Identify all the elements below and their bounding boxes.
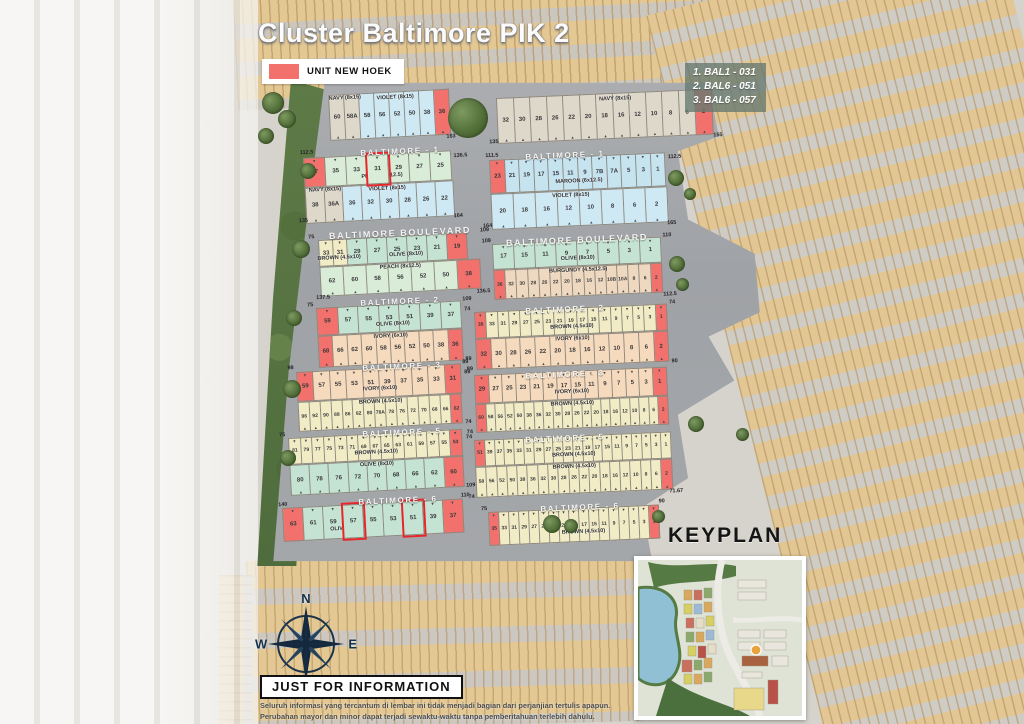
unit-1: ▼1 — [653, 367, 668, 397]
entrance-marker-icon: ▼ — [333, 158, 337, 162]
unit-23: ▼23 — [407, 234, 428, 262]
unit-number: 58 — [364, 113, 371, 119]
unit-38: ▲38 — [457, 259, 481, 290]
unit-7: ▼7 — [612, 368, 627, 398]
unit-number: 17 — [595, 446, 601, 451]
entrance-marker-icon: ▼ — [324, 241, 328, 245]
unit-number: 52 — [409, 344, 416, 350]
unit-number: 75 — [326, 447, 332, 452]
entrance-marker-icon: ▲ — [645, 357, 649, 361]
unit-21: ▼21 — [505, 159, 521, 194]
entrance-marker-icon: ▼ — [501, 245, 505, 249]
unit-20: ▲20 — [579, 94, 597, 141]
unit-number: 18 — [521, 207, 528, 213]
compass-west-label: W — [255, 638, 267, 651]
tree-icon — [669, 256, 685, 272]
unit-number: 61 — [407, 442, 413, 447]
entrance-marker-icon: ▲ — [527, 362, 531, 366]
entrance-marker-icon: ▲ — [433, 483, 437, 487]
unit-number: 19 — [523, 172, 530, 178]
unit-strip-north-left: ▲60▲58A▲58▲56▲52▲50▲38▲36NAVY (8x15)VIOL… — [328, 89, 451, 141]
entrance-marker-icon: ▲ — [577, 291, 581, 295]
entrance-marker-icon: ▼ — [450, 500, 454, 504]
entrance-marker-icon: ▲ — [636, 132, 640, 136]
entrance-marker-icon: ▲ — [556, 424, 560, 428]
unit-number: 30 — [386, 198, 393, 204]
unit-number: 1 — [656, 167, 660, 173]
unit-number: 16 — [618, 112, 625, 118]
entrance-marker-icon: ▼ — [630, 370, 634, 374]
unit-number: 66 — [443, 407, 449, 412]
unit-number: 27 — [374, 247, 381, 253]
unit-number: 26 — [574, 411, 580, 416]
unit-number: 66 — [412, 471, 419, 477]
edge-measure: 89 — [462, 360, 468, 366]
entrance-marker-icon: ▲ — [351, 134, 355, 138]
entrance-marker-icon: ▼ — [350, 436, 354, 440]
unit-number: 76 — [335, 475, 342, 481]
entrance-marker-icon: ▼ — [512, 312, 516, 316]
unit-21: ▼21 — [427, 233, 448, 261]
unit-number: 11 — [601, 521, 607, 526]
unit-number: 3 — [628, 248, 632, 254]
entrance-marker-icon: ▲ — [411, 131, 415, 135]
entrance-marker-icon: ▲ — [433, 419, 437, 423]
unit-number: 60 — [351, 277, 358, 283]
entrance-marker-icon: ▼ — [614, 307, 618, 311]
entrance-marker-icon: ▲ — [643, 420, 647, 424]
unit-8: ▲8 — [662, 90, 680, 137]
entrance-marker-icon: ▼ — [636, 306, 640, 310]
entrance-marker-icon: ▼ — [497, 440, 501, 444]
unit-number: 23 — [520, 384, 527, 390]
unit-number: 3 — [655, 443, 658, 448]
entrance-marker-icon: ▲ — [531, 490, 535, 494]
entrance-marker-icon: ▲ — [366, 133, 370, 137]
edge-measure: 112.5 — [663, 292, 677, 298]
compass-east-label: E — [348, 638, 357, 651]
unit-number: 28 — [565, 412, 571, 417]
unit-number: 61 — [310, 520, 317, 526]
unit-number: 11 — [588, 381, 595, 387]
entrance-marker-icon: ▼ — [345, 308, 349, 312]
unit-number: 36 — [530, 477, 536, 482]
unit-19: ▼19 — [519, 158, 535, 193]
unit-number: 52 — [420, 273, 427, 279]
unit-number: 28 — [510, 350, 517, 356]
unit-number: 20 — [564, 279, 570, 284]
unit-number: 20 — [585, 114, 592, 120]
entrance-marker-icon: ▲ — [318, 489, 322, 493]
unit-number: 22 — [553, 280, 559, 285]
unit-number: 35 — [332, 168, 339, 174]
unit-number: 56 — [489, 479, 495, 484]
unit-61: ▼61 — [303, 506, 325, 541]
unit-number: 50 — [423, 343, 430, 349]
disclaimer-line-1: Seluruh informasi yang tercantum di lemb… — [260, 701, 700, 712]
unit-number: 58 — [374, 276, 381, 282]
unit-number: 79 — [304, 448, 310, 453]
unit-number: 18 — [601, 113, 608, 119]
unit-number: 11 — [542, 252, 549, 258]
entrance-marker-icon: ▼ — [501, 312, 505, 316]
entrance-marker-icon: ▼ — [312, 159, 316, 163]
unit-51: ▼51 — [399, 303, 421, 332]
entrance-marker-icon: ▼ — [641, 155, 645, 159]
entrance-marker-icon: ▲ — [396, 132, 400, 136]
unit-number: 53 — [453, 440, 459, 445]
unit-number: 20 — [499, 208, 506, 214]
unit-number: 16 — [612, 410, 618, 415]
unit-number: 55 — [365, 316, 372, 322]
unit-number: 56 — [379, 112, 386, 118]
unit-number: 9 — [583, 170, 587, 176]
entrance-marker-icon: ▲ — [655, 217, 659, 221]
unit-60: ▲60 — [343, 265, 367, 296]
unit-76: ▲76 — [329, 462, 350, 494]
entrance-marker-icon: ▲ — [543, 292, 547, 296]
entrance-marker-icon: ▼ — [479, 376, 483, 380]
entrance-marker-icon: ▼ — [351, 506, 355, 510]
unit-35: ▼35 — [325, 156, 348, 187]
unit-number: 7 — [623, 521, 626, 526]
unit-number: 60 — [366, 346, 373, 352]
unit-10: ▲10 — [645, 91, 663, 138]
edge-measure: 112.5 — [300, 151, 314, 157]
unit-number: 56 — [497, 415, 503, 420]
tree-icon — [278, 110, 296, 128]
compass-north-label: N — [301, 592, 310, 605]
entrance-marker-icon: ▲ — [686, 130, 690, 134]
unit-number: 5 — [631, 380, 635, 386]
unit-number: 53 — [351, 381, 358, 387]
unit-62: ▲62 — [425, 457, 446, 489]
unit-number: 26 — [552, 115, 559, 121]
entrance-marker-icon: ▲ — [443, 211, 447, 215]
unit-31: ▼31 — [367, 154, 390, 185]
unit-11: ▼11 — [563, 156, 579, 191]
entrance-marker-icon: ▲ — [624, 486, 628, 490]
left-margin — [0, 0, 258, 724]
entrance-marker-icon: ▲ — [589, 220, 593, 224]
unit-number: 9 — [625, 444, 628, 449]
unit-number: 58A — [347, 113, 358, 120]
edge-measure: 135 — [489, 140, 498, 146]
entrance-marker-icon: ▲ — [537, 137, 541, 141]
unit-number: 20 — [592, 475, 598, 480]
unit-number: 17 — [500, 253, 507, 259]
entrance-marker-icon: ▲ — [614, 486, 618, 490]
unit-57: ▼57 — [313, 370, 331, 401]
keyplan-map — [634, 556, 806, 720]
entrance-marker-icon: ▲ — [655, 484, 659, 488]
unit-26: ▲26 — [416, 181, 436, 218]
tree-icon — [736, 428, 749, 441]
unit-2: ▲2 — [661, 458, 673, 489]
unit-number: 38 — [520, 478, 526, 483]
unit-number: 55 — [335, 382, 342, 388]
unit-60: ▲60 — [444, 456, 465, 488]
unit-22: ▲22 — [563, 94, 581, 141]
entrance-marker-icon: ▼ — [507, 440, 511, 444]
unit-number: 27 — [531, 524, 537, 529]
unit-53: ▼53 — [346, 369, 364, 400]
entrance-marker-icon: ▼ — [442, 431, 446, 435]
unit-number: 52 — [507, 414, 513, 419]
entrance-marker-icon: ▲ — [425, 212, 429, 216]
unit-17: ▼17 — [534, 157, 550, 192]
unit-number: 29 — [521, 525, 527, 530]
unit-number: 5 — [607, 249, 611, 255]
unit-number: 8 — [643, 409, 646, 414]
entrance-marker-icon: ▲ — [662, 419, 666, 423]
unit-55: ▼55 — [363, 503, 385, 538]
entrance-marker-icon: ▼ — [644, 434, 648, 438]
info-title: JUST FOR INFORMATION — [260, 675, 463, 699]
edge-measure: 136.5 — [477, 289, 491, 295]
unit-number: 8 — [669, 110, 673, 116]
unit-number: 33 — [353, 167, 360, 173]
unit-number: 68 — [432, 407, 438, 412]
tree-icon — [283, 380, 301, 398]
unit-53: ▼53 — [450, 429, 463, 457]
unit-number: 78A — [376, 410, 385, 415]
unit-number: 78 — [316, 476, 323, 482]
unit-9: ▼9 — [577, 156, 593, 191]
unit-number: 28 — [404, 197, 411, 203]
unit-number: 82 — [356, 411, 362, 416]
unit-number: 36 — [452, 342, 459, 348]
entrance-marker-icon: ▲ — [702, 129, 706, 133]
unit-number: 8 — [611, 204, 615, 210]
unit-row: ▲32▲30▲28▲26▲22▲20▲18▲16▲12▲10▲8▲6▲2NAVY… — [496, 89, 713, 144]
entrance-marker-icon: ▼ — [487, 441, 491, 445]
entrance-marker-icon: ▲ — [390, 421, 394, 425]
unit-15: ▼15 — [548, 157, 564, 192]
unit-27: ▼27 — [367, 236, 388, 264]
entrance-marker-icon: ▼ — [663, 433, 667, 437]
edge-measure: 74 — [669, 300, 675, 306]
tree-icon — [676, 278, 689, 291]
unit-number: 21 — [434, 244, 441, 250]
unit-39: ▼39 — [420, 301, 442, 330]
unit-number: 51 — [410, 515, 417, 521]
unit-number: 31 — [500, 322, 506, 327]
unit-27: ▼27 — [489, 374, 504, 404]
entrance-marker-icon: ▼ — [304, 438, 308, 442]
entrance-marker-icon: ▲ — [498, 294, 502, 298]
entrance-marker-icon: ▲ — [399, 287, 403, 291]
unit-number: 9 — [615, 317, 618, 322]
unit-number: 80 — [367, 411, 373, 416]
unit-number: 26 — [571, 476, 577, 481]
entrance-marker-icon: ▲ — [426, 130, 430, 134]
unit-number: 22 — [584, 411, 590, 416]
unit-number: 53 — [390, 516, 397, 522]
entrance-marker-icon: ▼ — [614, 435, 618, 439]
entrance-marker-icon: ▼ — [477, 441, 481, 445]
unit-number: 3 — [644, 379, 648, 385]
tree-icon — [668, 170, 684, 186]
unit-number: 60 — [334, 114, 341, 120]
unit-19: ▼19 — [447, 232, 468, 260]
entrance-marker-icon: ▲ — [412, 420, 416, 424]
unit-number: 26 — [525, 349, 532, 355]
unit-number: 39 — [427, 313, 434, 319]
entrance-marker-icon: ▼ — [493, 375, 497, 379]
unit-37: ▼37 — [440, 300, 462, 329]
note-line: 2. BAL6 - 051 — [693, 80, 756, 94]
unit-number: 5 — [633, 520, 636, 525]
unit-number: 25 — [506, 385, 513, 391]
unit-number: 11 — [567, 170, 574, 176]
edge-measure: 74 — [466, 435, 472, 441]
unit-1: ▼1 — [661, 431, 672, 458]
entrance-marker-icon: ▲ — [480, 427, 484, 431]
unit-39: ▼39 — [423, 500, 445, 535]
entrance-marker-icon: ▼ — [626, 155, 630, 159]
entrance-marker-icon: ▼ — [624, 435, 628, 439]
entrance-marker-icon: ▼ — [655, 154, 659, 158]
unit-number: 32 — [367, 199, 374, 205]
unit-number: 16 — [586, 278, 592, 283]
edge-measure: 109 — [482, 239, 491, 245]
unit-number: 62 — [351, 347, 358, 353]
unit-number: 8 — [633, 276, 636, 281]
unit-row: ▲60▲58A▲58▲56▲52▲50▲38▲36NAVY (8x15)VIOL… — [328, 89, 451, 141]
unit-number: 15 — [591, 522, 597, 527]
entrance-marker-icon: ▲ — [335, 424, 339, 428]
unit-8: ▲8 — [601, 188, 625, 225]
entrance-marker-icon: ▼ — [325, 309, 329, 313]
unit-number: 31 — [511, 525, 517, 530]
entrance-marker-icon: ▲ — [497, 363, 501, 367]
unit-number: 30 — [519, 117, 526, 123]
unit-number: 35 — [491, 526, 497, 531]
unit-62: ▲62 — [451, 393, 463, 424]
entrance-marker-icon: ▲ — [523, 223, 527, 227]
unit-number: 22 — [441, 195, 448, 201]
unit-number: 30 — [519, 281, 525, 286]
entrance-marker-icon: ▲ — [614, 421, 618, 425]
unit-number: 60 — [450, 469, 457, 475]
unit-number: 56 — [397, 275, 404, 281]
entrance-marker-icon: ▲ — [610, 289, 614, 293]
unit-number: 52 — [499, 479, 505, 484]
unit-number: 59 — [418, 442, 424, 447]
unit-number: 10 — [613, 345, 620, 351]
unit-number: 12 — [622, 409, 628, 414]
unit-30: ▲30 — [491, 338, 507, 370]
entrance-marker-icon: ▲ — [422, 420, 426, 424]
unit-number: 36 — [349, 200, 356, 206]
keyplan-title: KEYPLAN — [668, 524, 782, 548]
unit-5: ▼5 — [621, 154, 637, 189]
unit-number: 38 — [526, 414, 532, 419]
unit-number: 26 — [542, 280, 548, 285]
unit-53: ▼53 — [379, 304, 401, 333]
entrance-marker-icon: ▲ — [353, 290, 357, 294]
entrance-marker-icon: ▲ — [512, 363, 516, 367]
entrance-marker-icon: ▲ — [583, 488, 587, 492]
unit-number: 36A — [328, 201, 339, 208]
unit-28: ▲28 — [530, 96, 548, 143]
entrance-marker-icon: ▲ — [554, 136, 558, 140]
entrance-marker-icon: ▲ — [441, 129, 445, 133]
entrance-marker-icon: ▲ — [299, 490, 303, 494]
unit-number: 39 — [430, 514, 437, 520]
unit-number: 31 — [526, 448, 532, 453]
entrance-marker-icon: ▼ — [338, 437, 342, 441]
unit-number: 20 — [593, 411, 599, 416]
unit-number: 62 — [454, 406, 460, 411]
entrance-marker-icon: ▲ — [655, 287, 659, 291]
entrance-marker-icon: ▼ — [520, 374, 524, 378]
unit-number: 70 — [373, 473, 380, 479]
unit-number: 18 — [575, 279, 581, 284]
edge-measure: 75 — [308, 235, 314, 241]
unit-number: 57 — [345, 317, 352, 323]
entrance-marker-icon: ▼ — [625, 307, 629, 311]
legend: UNIT NEW HOEK — [262, 59, 404, 84]
unit-18: ▲18 — [513, 192, 537, 229]
unit-number: 72 — [354, 474, 361, 480]
unit-number: 16 — [612, 474, 618, 479]
edge-measure: 71.67 — [669, 489, 683, 495]
unit-number: 2 — [659, 343, 663, 349]
unit-number: 62 — [329, 278, 336, 284]
unit-number: 10B — [607, 277, 616, 282]
disclaimer-line-2: Perubahan mayor dan minor dapat terjadi … — [260, 712, 700, 723]
unit-number: 92 — [312, 413, 318, 418]
unit-number: 12 — [623, 473, 629, 478]
unit-number: 51 — [477, 451, 483, 456]
entrance-marker-icon: ▼ — [648, 306, 652, 310]
entrance-marker-icon: ▲ — [314, 425, 318, 429]
unit-number: 5 — [627, 168, 631, 174]
entrance-marker-icon: ▲ — [444, 285, 448, 289]
entrance-marker-icon: ▼ — [354, 157, 358, 161]
unit-number: 17 — [581, 522, 587, 527]
unit-53: ▼53 — [383, 502, 405, 537]
unit-number: 63 — [290, 521, 297, 527]
unit-number: 7 — [626, 316, 629, 321]
entrance-marker-icon: ▲ — [575, 423, 579, 427]
entrance-marker-icon: ▲ — [660, 356, 664, 360]
entrance-marker-icon: ▼ — [331, 507, 335, 511]
unit-number: 16 — [543, 206, 550, 212]
entrance-marker-icon: ▼ — [634, 434, 638, 438]
unit-number: 1 — [664, 443, 667, 448]
entrance-marker-icon: ▲ — [633, 420, 637, 424]
entrance-marker-icon: ▲ — [401, 421, 405, 425]
unit-2: ▲2 — [654, 331, 670, 363]
entrance-marker-icon: ▼ — [605, 436, 609, 440]
unit-number: 58 — [479, 480, 485, 485]
unit-number: 6 — [652, 408, 655, 413]
unit-number: 9 — [613, 521, 616, 526]
entrance-marker-icon: ▼ — [303, 373, 307, 377]
edge-measure: 110 — [662, 233, 671, 239]
unit-number: 37 — [400, 378, 407, 384]
unit-number: 25 — [437, 163, 444, 169]
unit-37: ▼37 — [443, 499, 465, 534]
entrance-marker-icon: ▲ — [634, 485, 638, 489]
unit-number: 62 — [431, 470, 438, 476]
entrance-marker-icon: ▲ — [395, 485, 399, 489]
entrance-marker-icon: ▲ — [325, 362, 329, 366]
entrance-marker-icon: ▲ — [615, 358, 619, 362]
